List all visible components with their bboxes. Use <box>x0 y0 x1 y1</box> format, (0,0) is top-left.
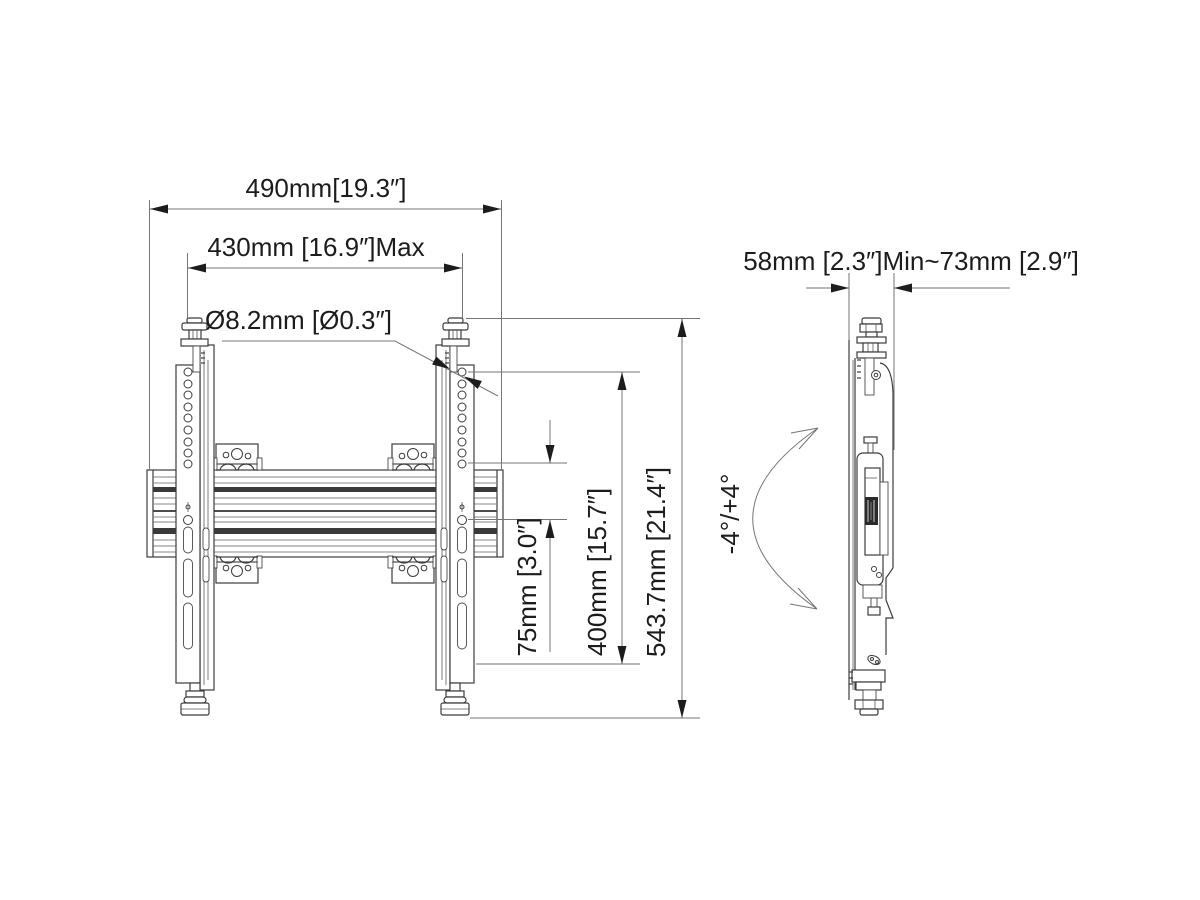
rail-right <box>436 318 474 715</box>
side-bottom-screw <box>852 670 885 715</box>
overall-width-label: 490mm[19.3″] <box>246 173 407 203</box>
max-width-label: 430mm [16.9″]Max <box>207 232 424 262</box>
tilt-arc <box>753 428 818 609</box>
side-profile <box>849 318 893 715</box>
tv-plate-lower-edge <box>886 568 893 655</box>
product-label <box>865 497 878 525</box>
tilt-annotation: -4°/+4° <box>715 428 818 609</box>
vesa-bracket-lower-right <box>388 556 438 583</box>
wall-mount-drawing: 490mm[19.3″] 430mm [16.9″]Max Ø8.2mm [Ø0… <box>0 0 1200 900</box>
tilt-range-label: -4°/+4° <box>715 474 745 555</box>
vesa-bracket-upper-left <box>212 444 262 470</box>
dimension-depth-range: 58mm [2.3″]Min~73mm [2.9″] <box>743 246 1079 450</box>
rail-right-inner-strip <box>436 345 450 690</box>
side-top-screw <box>857 318 886 395</box>
rail-left-inner-strip <box>200 345 214 690</box>
overall-height-label: 543.7mm [21.4″] <box>641 467 671 657</box>
hole-diameter-label: Ø8.2mm [Ø0.3″] <box>205 305 392 335</box>
latch-bolt-head <box>864 437 877 443</box>
drawing-canvas: 490mm[19.3″] 430mm [16.9″]Max Ø8.2mm [Ø0… <box>0 0 1200 900</box>
depth-range-label: 58mm [2.3″]Min~73mm [2.9″] <box>743 246 1079 276</box>
hole-pitch-label: 75mm [3.0″] <box>512 517 542 656</box>
vesa-height-label: 400mm [15.7″] <box>582 488 612 656</box>
side-view: 58mm [2.3″]Min~73mm [2.9″] -4°/+4° <box>715 246 1079 715</box>
front-view: 490mm[19.3″] 430mm [16.9″]Max Ø8.2mm [Ø0… <box>147 173 700 718</box>
vesa-bracket-upper-right <box>388 444 438 470</box>
vesa-bracket-lower-left <box>212 556 262 583</box>
rail-left <box>176 318 214 715</box>
